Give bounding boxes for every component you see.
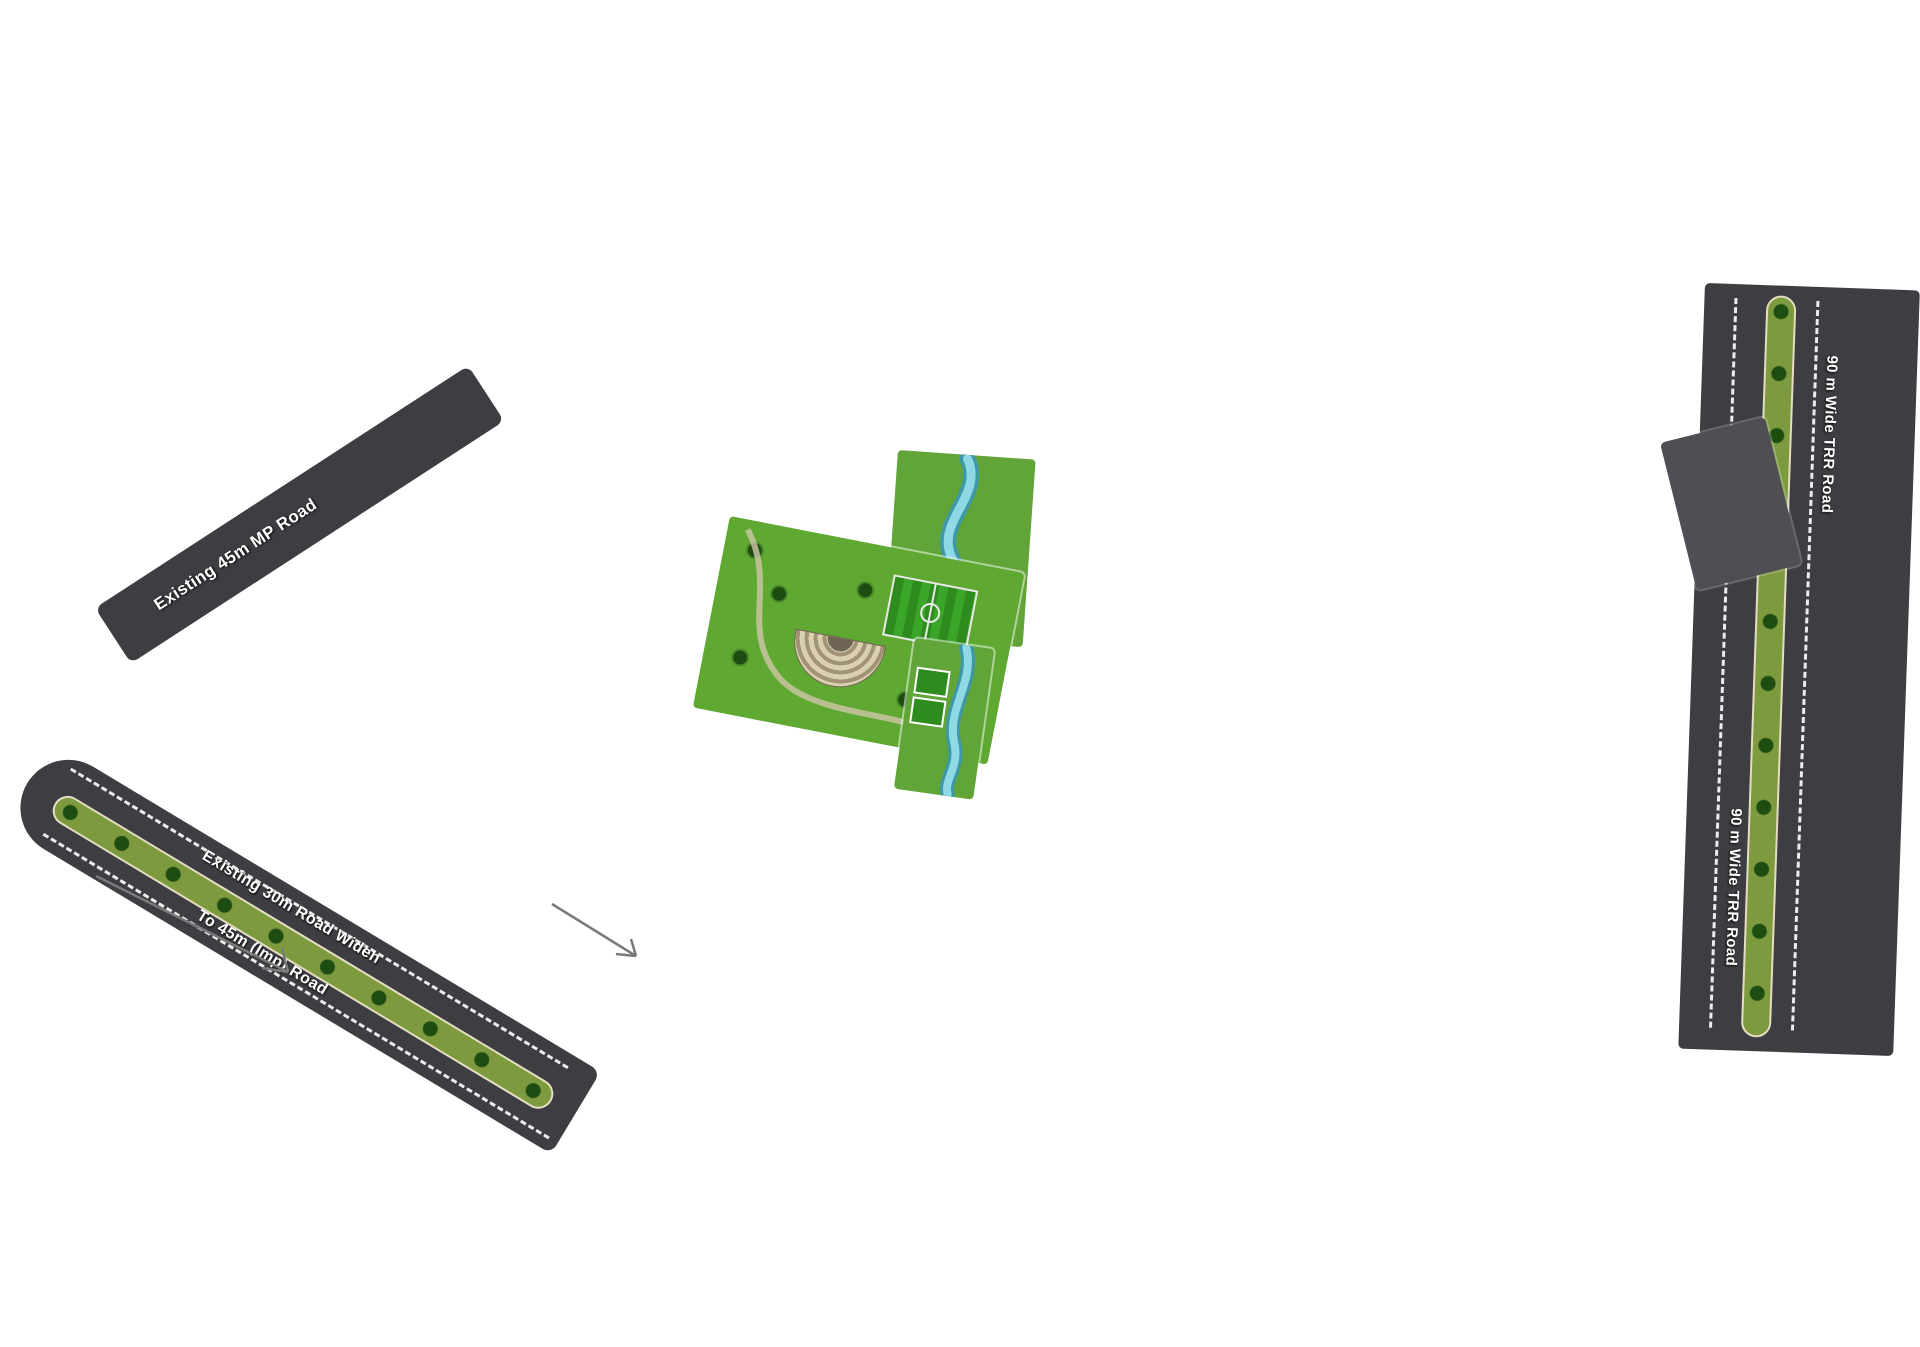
- trr-90m-road: 90 m Wide TRR Road 90 m Wide TRR Road: [1678, 283, 1920, 1056]
- lane-dash: [1791, 301, 1819, 1031]
- road-label-trr-top: 90 m Wide TRR Road: [1818, 355, 1841, 513]
- to-malur-arrow: [548, 900, 668, 980]
- road-median: [1741, 295, 1797, 1038]
- existing-45m-mp-road: Existing 45m MP Road: [95, 366, 504, 664]
- road-label-existing-45m-mp: Existing 45m MP Road: [151, 495, 321, 615]
- court: [913, 667, 950, 698]
- road-label-trr-bottom: 90 m Wide TRR Road: [1722, 808, 1745, 966]
- from-hoskote-arrow: [92, 872, 332, 1002]
- site-plan-map: Existing 45m MP Road Existing 30m Road W…: [0, 0, 1920, 1347]
- court: [909, 696, 946, 727]
